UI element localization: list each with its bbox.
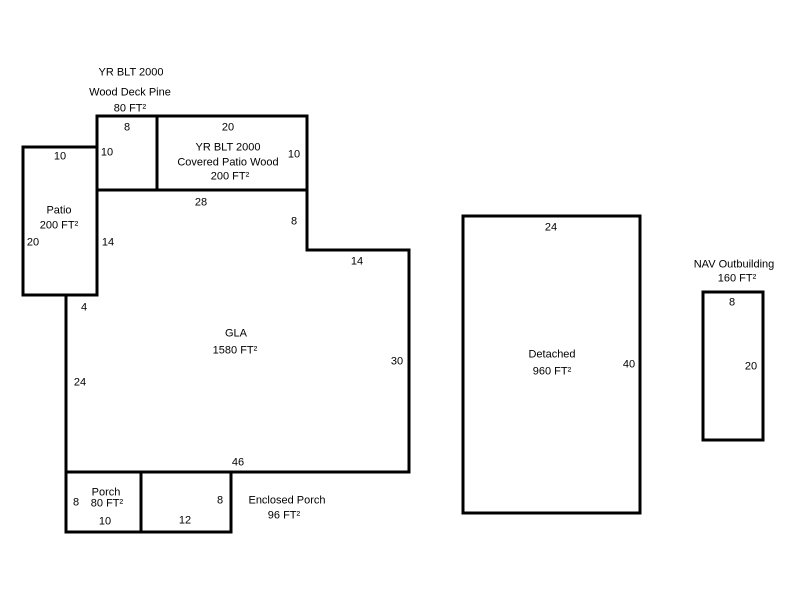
floorplan-sketch-page: YR BLT 2000 Wood Deck Pine 80 FT² 8 10 2… [0, 0, 800, 600]
wood-deck-name-label: Wood Deck Pine [89, 88, 171, 99]
patio-width-dim: 10 [54, 152, 66, 163]
gla-area-label: 1580 FT² [213, 346, 258, 357]
covered-patio-width-dim: 20 [222, 123, 234, 134]
detached-outline [463, 216, 640, 513]
enclosed-porch-width-dim: 12 [179, 516, 191, 527]
gla-upper-left-dim: 14 [102, 238, 114, 249]
porch-width-dim: 10 [99, 517, 111, 528]
detached-height-dim: 40 [623, 360, 635, 371]
covered-patio-year-built-label: YR BLT 2000 [195, 143, 260, 154]
gla-name-label: GLA [225, 329, 247, 340]
patio-name-label: Patio [46, 206, 71, 217]
wood-deck-width-dim: 8 [124, 123, 130, 134]
porch-height-dim: 8 [73, 498, 79, 509]
wood-deck-area-label: 80 FT² [114, 104, 146, 115]
gla-right-dim: 30 [391, 357, 403, 368]
detached-name-label: Detached [528, 350, 575, 361]
patio-height-dim: 20 [27, 238, 39, 249]
gla-step-right-dim: 14 [351, 257, 363, 268]
covered-patio-area-label: 200 FT² [211, 172, 250, 183]
outbuilding-height-dim: 20 [745, 362, 757, 373]
covered-patio-name-label: Covered Patio Wood [177, 158, 278, 169]
covered-patio-height-dim: 10 [288, 150, 300, 161]
gla-left-dim: 24 [74, 378, 86, 389]
detached-width-dim: 24 [545, 223, 557, 234]
outbuilding-name-label: NAV Outbuilding [694, 260, 775, 271]
porch-area-label: 80 FT² [91, 499, 123, 510]
outbuilding-area-label: 160 FT² [718, 274, 757, 285]
gla-notch-dim: 4 [81, 303, 87, 314]
outbuilding-width-dim: 8 [729, 298, 735, 309]
patio-area-label: 200 FT² [40, 221, 79, 232]
enclosed-porch-area-label: 96 FT² [268, 511, 300, 522]
gla-bottom-dim: 46 [232, 458, 244, 469]
detached-area-label: 960 FT² [533, 367, 572, 378]
wood-deck-height-dim: 10 [101, 148, 113, 159]
enclosed-porch-height-dim: 8 [217, 496, 223, 507]
enclosed-porch-name-label: Enclosed Porch [248, 496, 325, 507]
wood-deck-year-built-label: YR BLT 2000 [98, 68, 163, 79]
gla-top-dim: 28 [195, 198, 207, 209]
gla-step-down-dim: 8 [291, 217, 297, 228]
